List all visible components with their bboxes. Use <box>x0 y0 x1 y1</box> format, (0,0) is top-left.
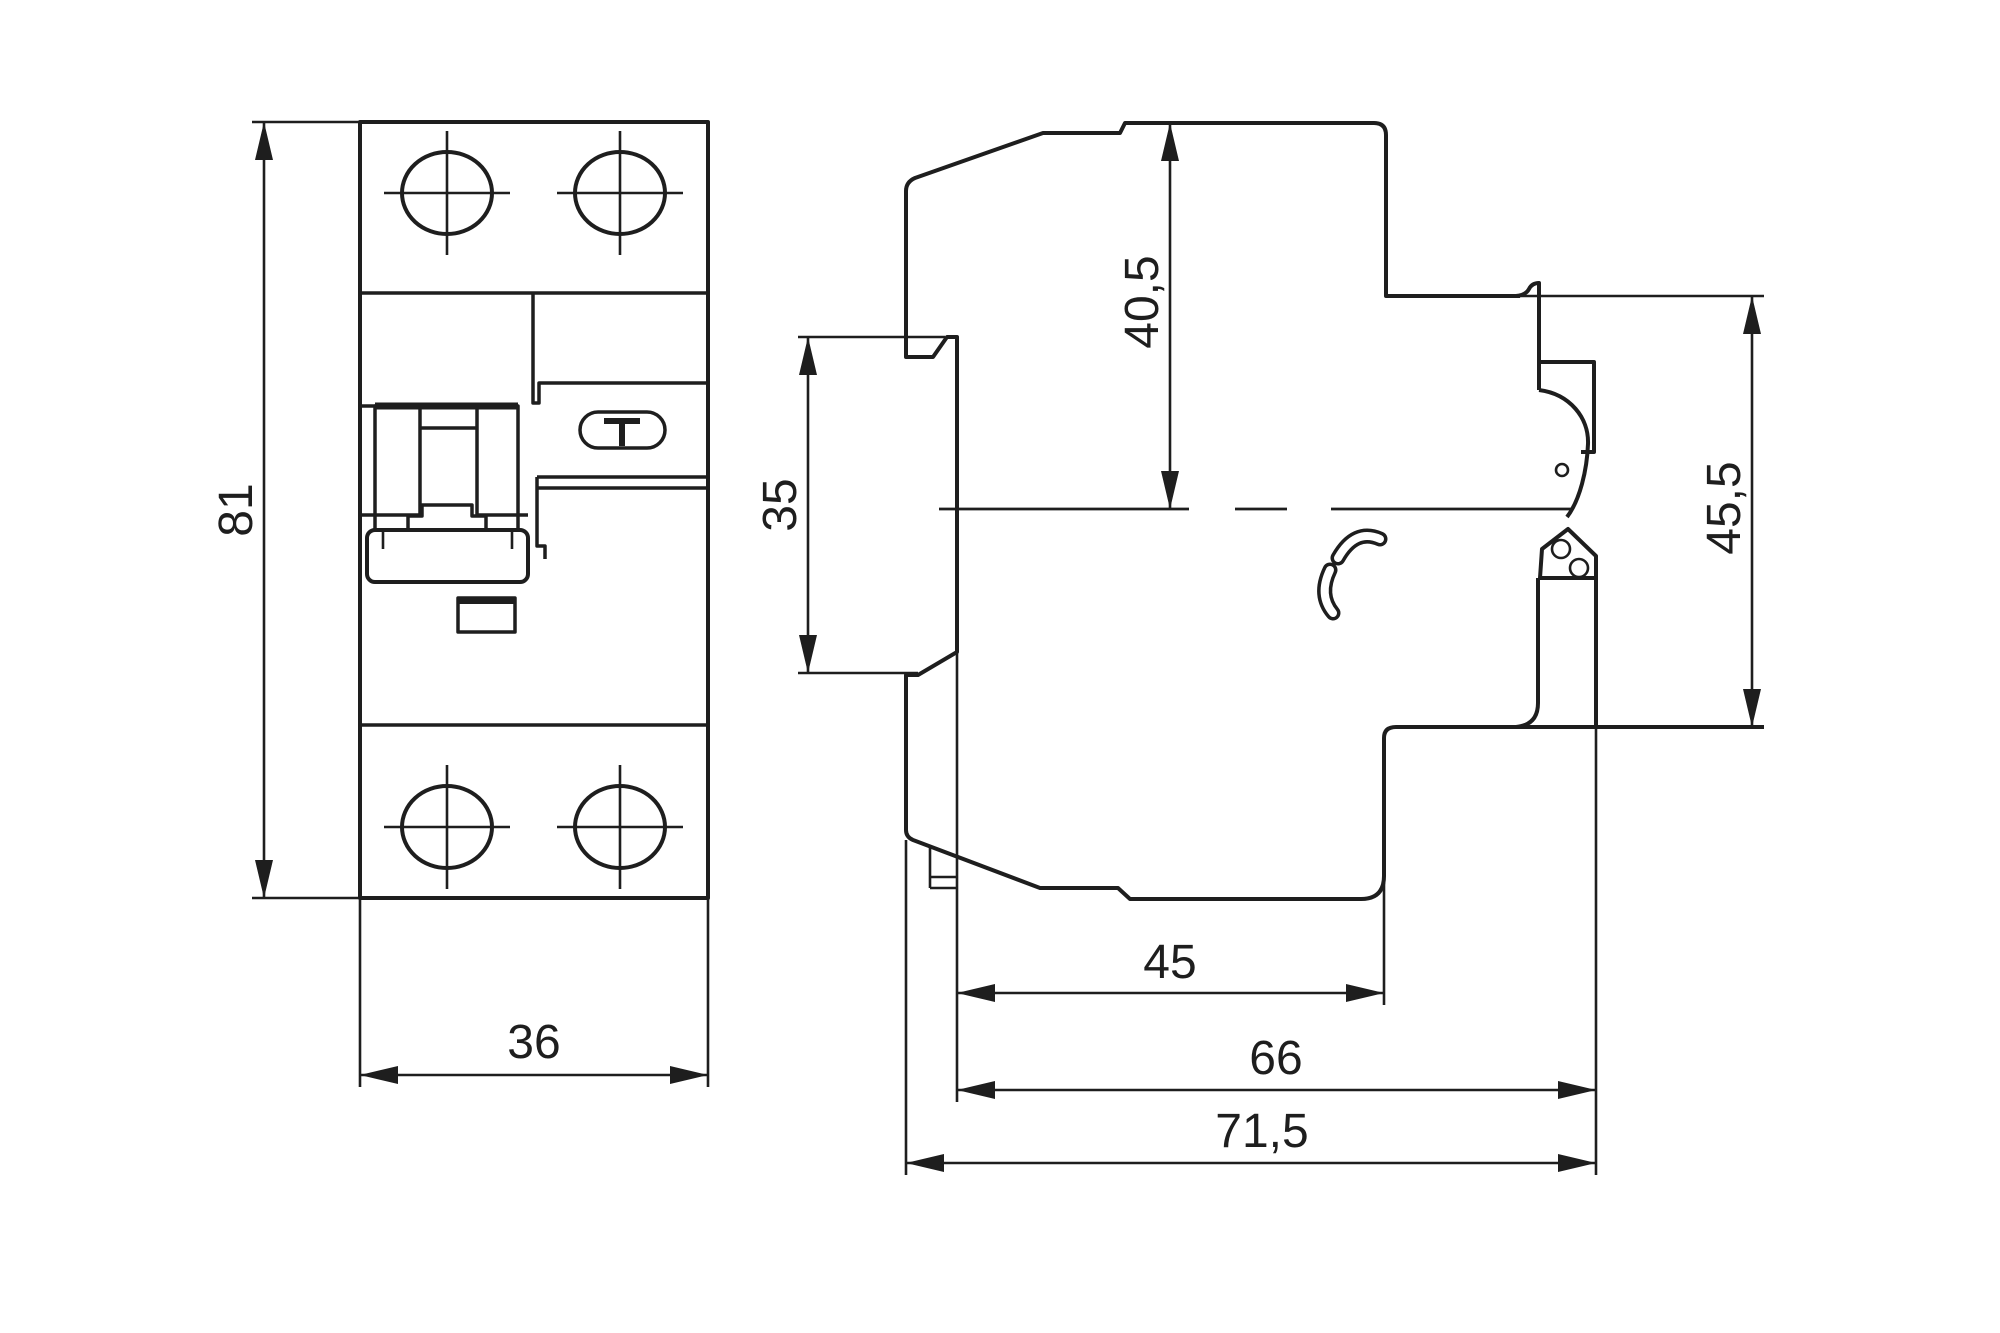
dimension-depth-lower-45: 45 <box>957 936 1384 1002</box>
dimension-depth-to-center-40-5: 40,5 <box>1116 123 1179 509</box>
clip-inner-face <box>1516 578 1538 727</box>
clip-fixed-jaw <box>1539 362 1594 452</box>
dimension-depth-total-71-5: 71,5 <box>906 1105 1596 1172</box>
toggle-switch <box>360 406 528 582</box>
arrowhead-icon <box>255 860 273 898</box>
toggle-right-column <box>477 406 518 515</box>
dim-width-label: 36 <box>507 1016 560 1069</box>
toggle-left-column <box>375 406 420 515</box>
drawing-page: T 81 36 <box>0 0 2000 1333</box>
dimension-depth-mid-66: 66 <box>957 1032 1596 1099</box>
dimension-height-81: 81 <box>210 122 360 898</box>
terminal-screw-icon <box>557 131 683 255</box>
arrowhead-icon <box>906 1154 944 1172</box>
arrowhead-icon <box>255 122 273 160</box>
arrowhead-icon <box>957 984 995 1002</box>
terminal-screw-icon <box>384 765 510 889</box>
dim-depth-lower-label: 45 <box>1143 936 1196 989</box>
arrowhead-icon <box>957 1081 995 1099</box>
test-button-glyph <box>604 421 640 446</box>
dimension-width-36: 36 <box>360 898 708 1087</box>
dim-depth-total-label: 71,5 <box>1215 1105 1308 1158</box>
dim-right-height-label: 45,5 <box>1698 461 1751 554</box>
extension-line <box>798 337 945 673</box>
arrowhead-icon <box>1161 123 1179 161</box>
clip-release-hole <box>1570 559 1588 577</box>
dim-depth-to-center-label: 40,5 <box>1116 255 1169 348</box>
arrowhead-icon <box>1558 1081 1596 1099</box>
extension-lines <box>252 122 360 898</box>
arrowhead-icon <box>670 1066 708 1084</box>
arrowhead-icon <box>1743 296 1761 334</box>
terminal-screw-icon <box>384 131 510 255</box>
clip-release-hole <box>1552 540 1570 558</box>
arrowhead-icon <box>360 1066 398 1084</box>
dimension-din-rail-35: 35 <box>754 337 817 673</box>
housing-slot-icon <box>1325 536 1380 613</box>
arrowhead-icon <box>799 635 817 673</box>
clip-mouth-arc <box>1539 390 1588 517</box>
din-rail-clip <box>1516 283 1596 727</box>
pole-divider <box>533 293 708 403</box>
side-top-hump <box>1374 123 1520 296</box>
test-panel-band <box>537 477 708 559</box>
arrowhead-icon <box>1743 689 1761 727</box>
dimensional-drawing: T 81 36 <box>0 0 2000 1333</box>
arrowhead-icon <box>799 337 817 375</box>
front-view: T <box>0 0 708 898</box>
terminal-screw-icon <box>557 765 683 889</box>
clip-pivot-hole <box>1556 464 1568 476</box>
arrowhead-icon <box>1346 984 1384 1002</box>
label-window <box>458 598 515 632</box>
test-button: T <box>0 0 665 448</box>
arrowhead-icon <box>1558 1154 1596 1172</box>
dim-din-rail-label: 35 <box>754 478 807 531</box>
dim-height-label: 81 <box>210 483 263 536</box>
side-body-outline <box>906 123 1764 899</box>
dim-depth-mid-label: 66 <box>1249 1032 1302 1085</box>
side-view <box>798 123 1764 1175</box>
dimension-right-height-45-5: 45,5 <box>1698 296 1761 727</box>
toggle-base <box>367 530 528 582</box>
clip-top-hook <box>1516 283 1539 390</box>
arrowhead-icon <box>1161 471 1179 509</box>
front-body-outline <box>360 122 708 898</box>
